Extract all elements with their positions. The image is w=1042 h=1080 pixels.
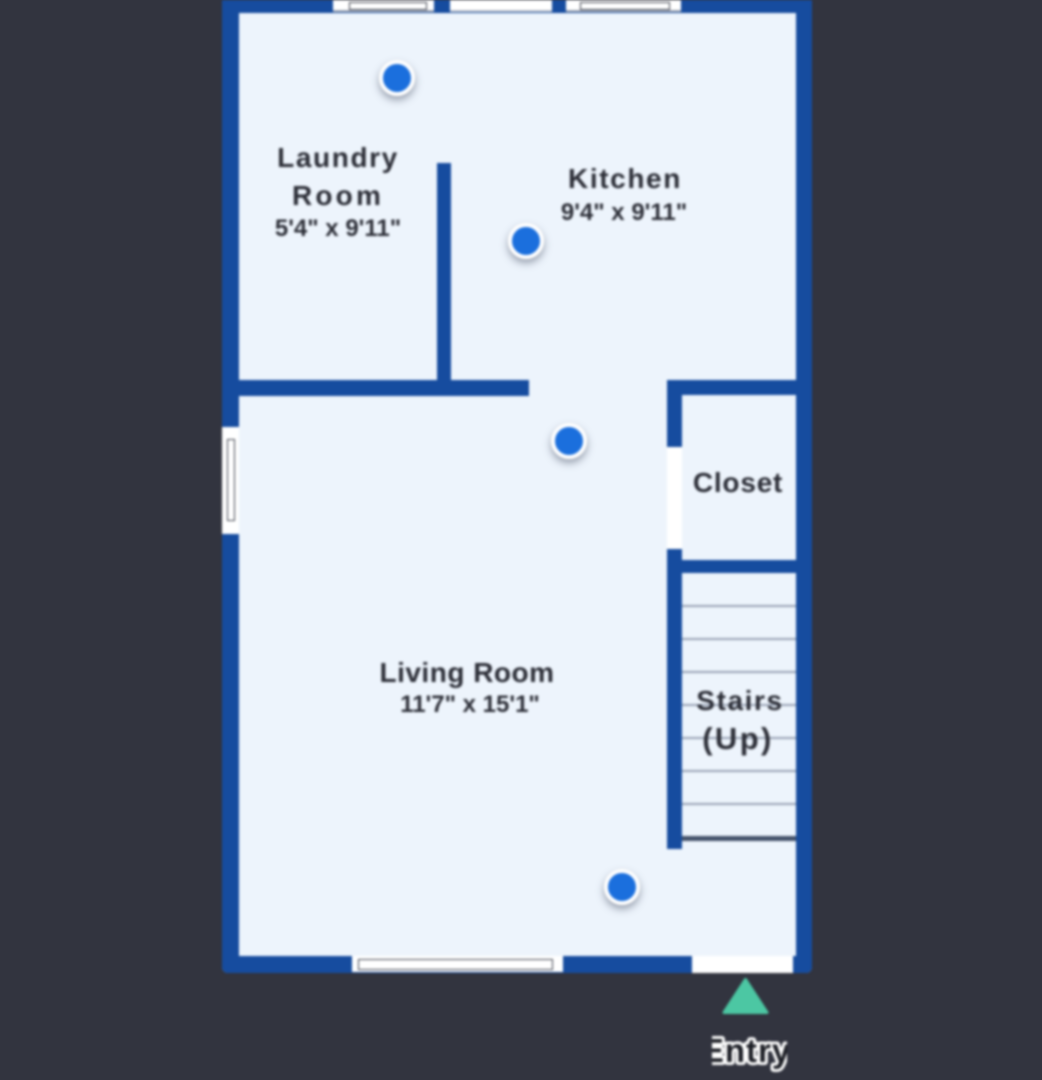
svg-text:Entry: Entry xyxy=(712,1032,787,1069)
